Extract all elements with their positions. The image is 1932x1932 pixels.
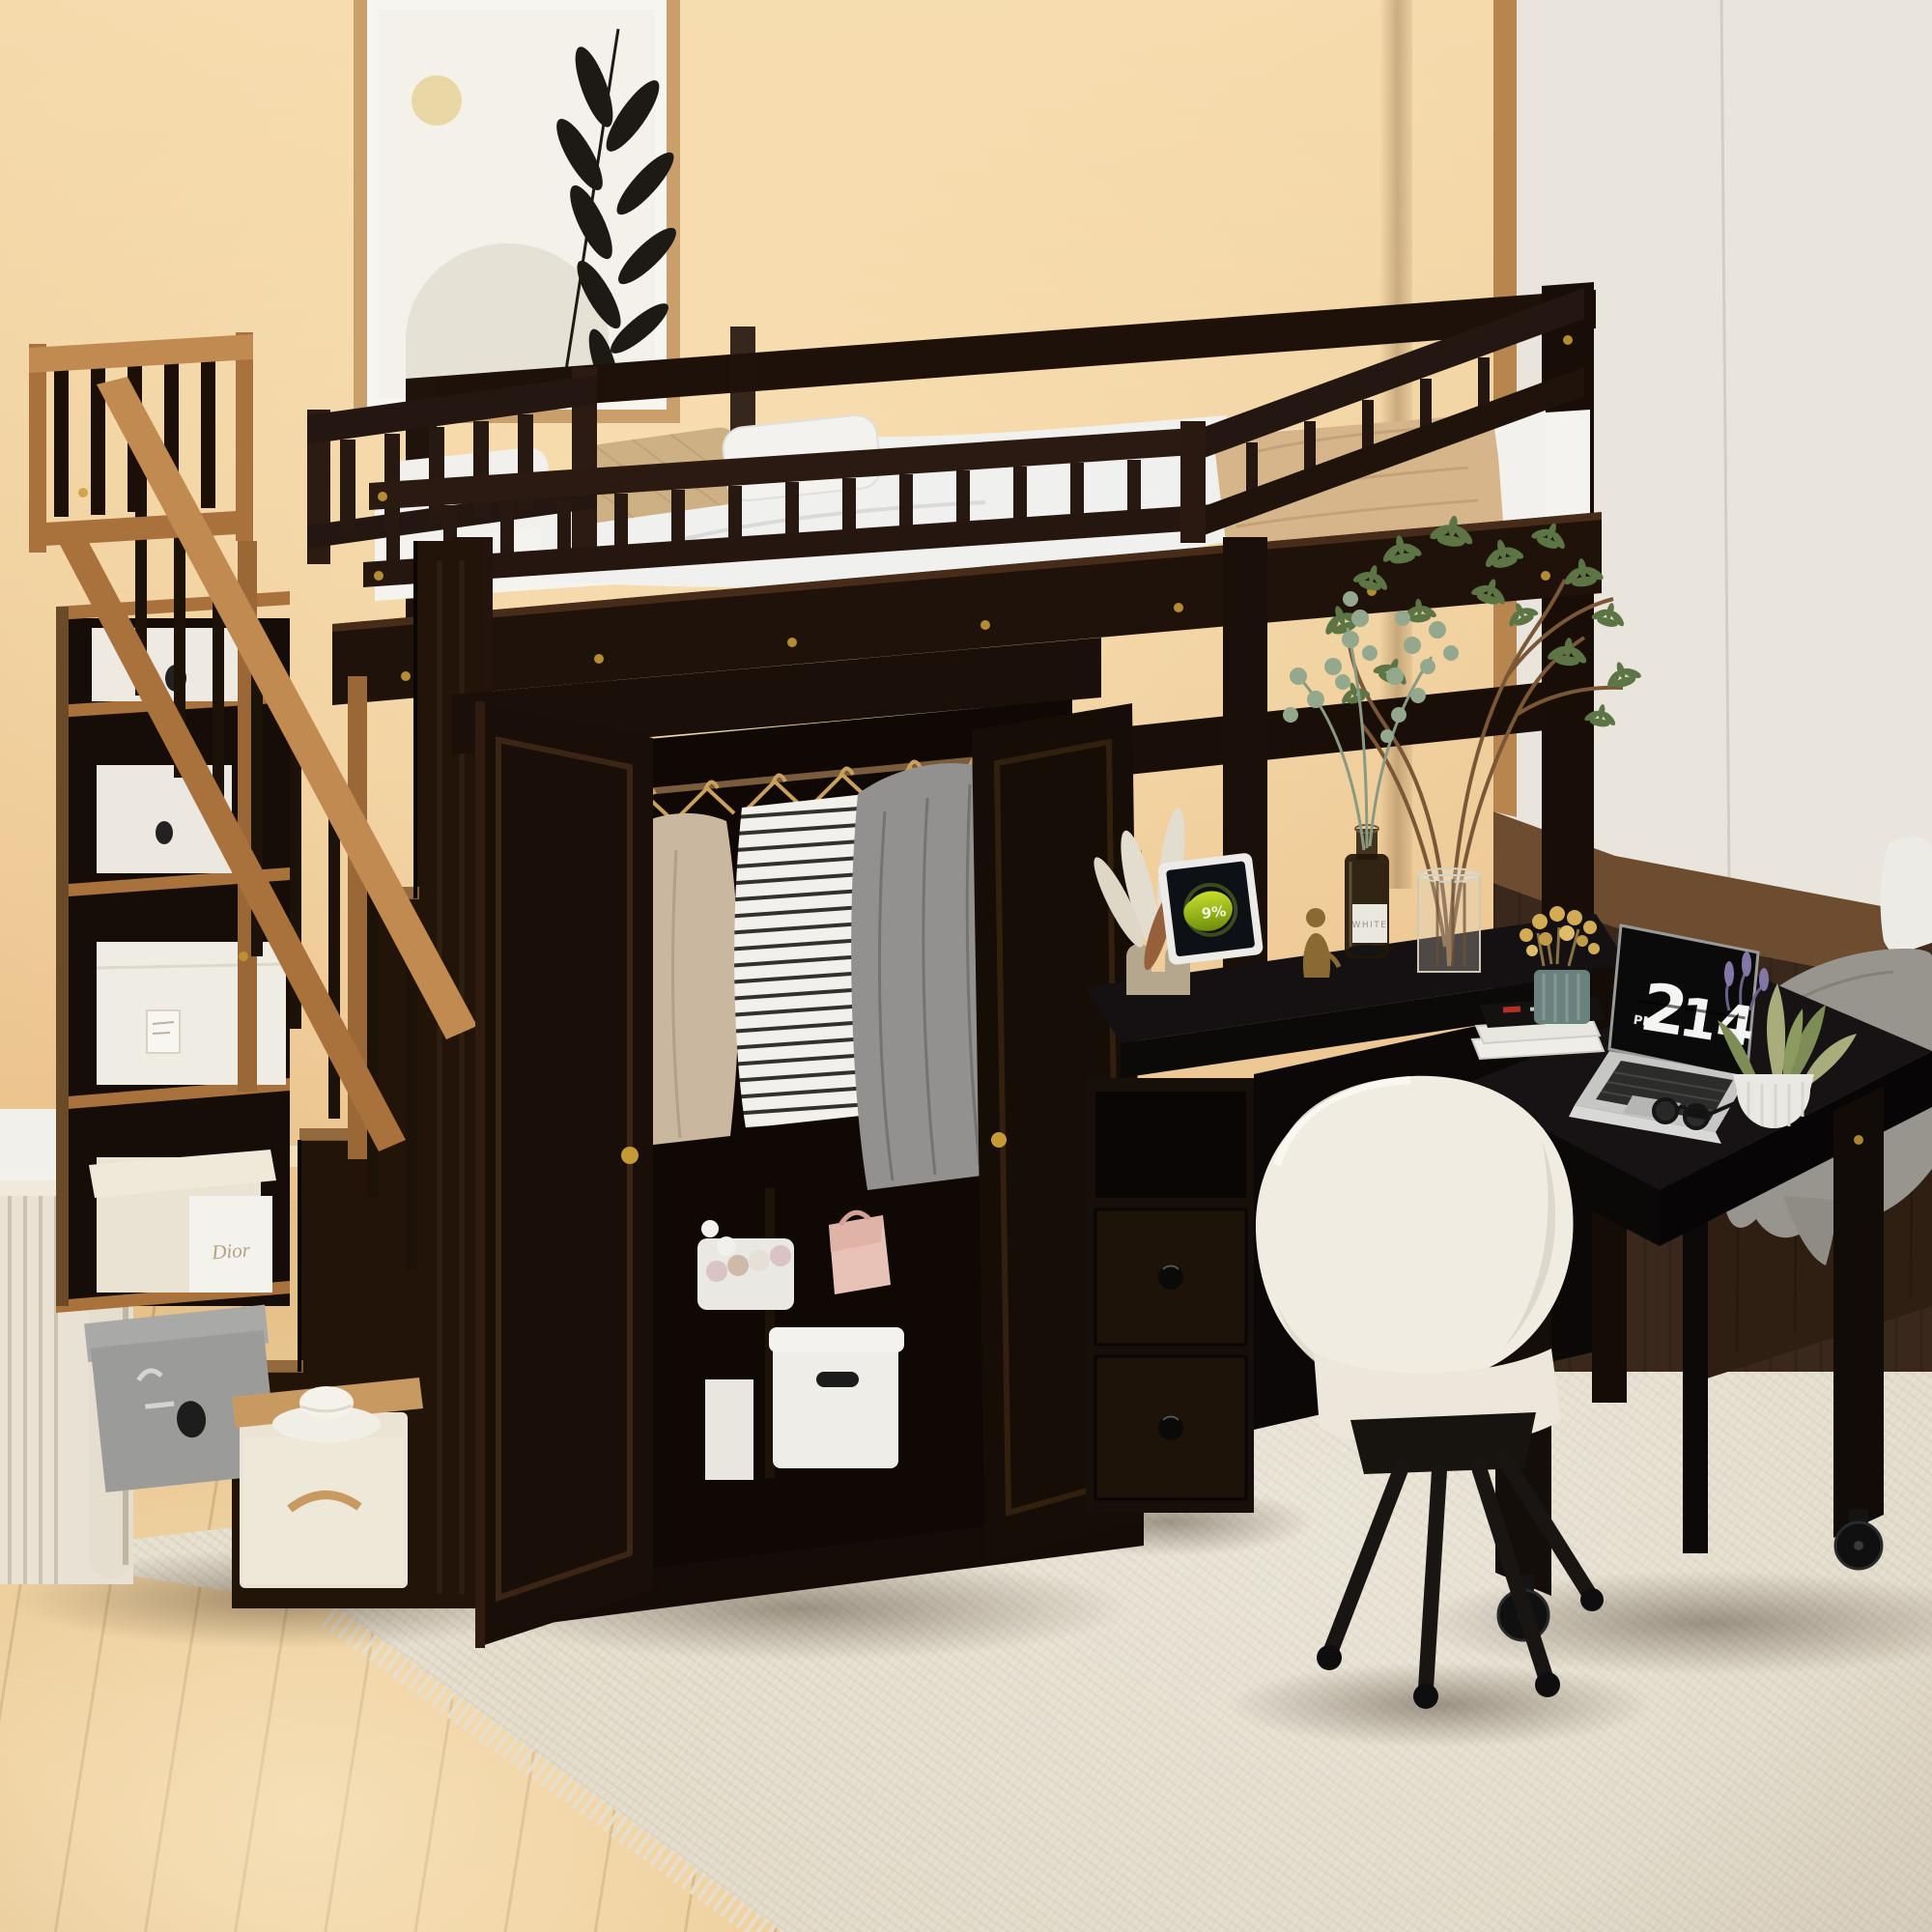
laptop-clock-minute: 14 bbox=[1675, 986, 1759, 1060]
desk-leg bbox=[1833, 1086, 1884, 1538]
drawer-knob bbox=[1158, 1264, 1183, 1290]
corner-post bbox=[1180, 421, 1206, 543]
lidded-storage-bin bbox=[773, 1333, 898, 1468]
bottle-label-text: WHITE bbox=[1351, 921, 1387, 930]
storage-box bbox=[705, 1379, 753, 1480]
tablet: 9% bbox=[1157, 852, 1264, 965]
door-knob bbox=[991, 1132, 1007, 1148]
tablet-battery-label: 9% bbox=[1201, 902, 1227, 923]
drawer-knob bbox=[1158, 1415, 1183, 1440]
bedroom-photo: Dior bbox=[0, 0, 1932, 1932]
wardrobe bbox=[452, 638, 1148, 1648]
dior-box-label: Dior bbox=[210, 1238, 251, 1264]
wall-art bbox=[354, 0, 683, 423]
pillow bbox=[1881, 837, 1932, 961]
art-sun-shape bbox=[412, 75, 462, 126]
door-knob bbox=[621, 1147, 639, 1164]
wardrobe-left-door bbox=[475, 701, 653, 1648]
glass-vase bbox=[1418, 868, 1480, 972]
drawer-unit bbox=[1086, 1078, 1254, 1513]
scene-artwork: Dior bbox=[0, 0, 1932, 1932]
